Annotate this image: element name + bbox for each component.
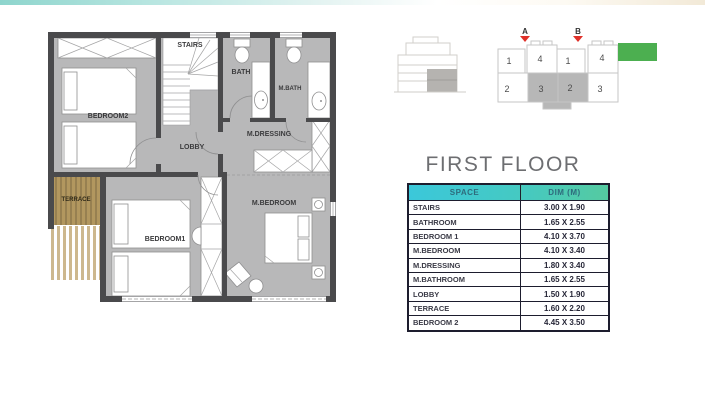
wardrobe-icon bbox=[254, 150, 312, 172]
space-cell: BATHROOM bbox=[408, 215, 521, 229]
section-marker-b: B bbox=[573, 27, 583, 42]
dim-cell: 3.00 X 1.90 bbox=[521, 201, 610, 215]
building-key-plan: A B 1 4 1 4 2 3 2 3 bbox=[494, 24, 622, 112]
floor-plan: STAIRS BATH M.BATH BEDROOM2 M.DRESSING L… bbox=[38, 24, 350, 316]
column-header-dim: DIM (M) bbox=[521, 184, 610, 201]
unit-number: 1 bbox=[565, 56, 570, 66]
svg-text:A: A bbox=[522, 27, 528, 36]
table-header-row: SPACE DIM (M) bbox=[408, 184, 609, 201]
bed-icon bbox=[112, 252, 190, 296]
table-row: BATHROOM1.65 X 2.55 bbox=[408, 215, 609, 229]
dim-cell: 4.45 X 3.50 bbox=[521, 316, 610, 331]
vanity-sink-icon bbox=[252, 62, 270, 118]
unit-number: 1 bbox=[506, 56, 511, 66]
room-label-bath: BATH bbox=[232, 69, 251, 76]
space-cell: LOBBY bbox=[408, 287, 521, 301]
unit-number: 4 bbox=[537, 54, 542, 64]
bed-icon bbox=[62, 68, 136, 114]
top-accent-bar bbox=[0, 0, 705, 5]
unit-number: 2 bbox=[567, 83, 572, 93]
room-label-mdressing: M.DRESSING bbox=[247, 131, 292, 138]
marker-arrow-icon bbox=[573, 36, 583, 42]
table-row: M.BEDROOM4.10 X 3.40 bbox=[408, 244, 609, 258]
key-plan-units: 1 4 1 4 2 3 2 3 bbox=[498, 41, 618, 109]
unit-number: 3 bbox=[597, 84, 602, 94]
wardrobe-icon bbox=[58, 38, 156, 58]
toilet-icon bbox=[286, 39, 302, 63]
space-cell: TERRACE bbox=[408, 301, 521, 315]
dim-cell: 1.65 X 2.55 bbox=[521, 215, 610, 229]
wardrobe-icon bbox=[312, 120, 330, 172]
room-label-lobby: LOBBY bbox=[180, 144, 205, 151]
side-table-icon bbox=[249, 279, 263, 293]
unit-number: 4 bbox=[599, 53, 604, 63]
svg-text:B: B bbox=[575, 27, 581, 36]
dim-cell: 1.60 X 2.20 bbox=[521, 301, 610, 315]
section-marker-a: A bbox=[520, 27, 530, 42]
room-label-bedroom2: BEDROOM2 bbox=[88, 113, 129, 120]
dim-cell: 1.50 X 1.90 bbox=[521, 287, 610, 301]
space-cell: M.DRESSING bbox=[408, 258, 521, 272]
legend-green-swatch bbox=[618, 43, 657, 61]
dimensions-table: SPACE DIM (M) STAIRS3.00 X 1.90 BATHROOM… bbox=[407, 183, 610, 332]
room-label-terrace: TERRACE bbox=[61, 197, 90, 203]
dim-cell: 1.80 X 3.40 bbox=[521, 258, 610, 272]
page-title: FIRST FLOOR bbox=[396, 153, 610, 177]
bed-icon bbox=[62, 122, 136, 168]
dim-cell: 1.65 X 2.55 bbox=[521, 272, 610, 286]
space-cell: M.BEDROOM bbox=[408, 244, 521, 258]
column-header-space: SPACE bbox=[408, 184, 521, 201]
table-row: LOBBY1.50 X 1.90 bbox=[408, 287, 609, 301]
terrace-open-deck bbox=[51, 226, 102, 280]
marker-arrow-icon bbox=[520, 36, 530, 42]
room-label-stairs: STAIRS bbox=[177, 42, 202, 49]
unit-number: 2 bbox=[504, 84, 509, 94]
space-cell: M.BATHROOM bbox=[408, 272, 521, 286]
room-label-mbath: M.BATH bbox=[279, 86, 302, 92]
table-row: BEDROOM 24.45 X 3.50 bbox=[408, 316, 609, 331]
unit-number: 3 bbox=[538, 84, 543, 94]
toilet-icon bbox=[234, 39, 250, 63]
space-cell: BEDROOM 2 bbox=[408, 316, 521, 331]
table-row: BEDROOM 14.10 X 3.70 bbox=[408, 229, 609, 243]
dim-cell: 4.10 X 3.40 bbox=[521, 244, 610, 258]
building-elevation-diagram bbox=[394, 34, 472, 96]
table-row: M.BATHROOM1.65 X 2.55 bbox=[408, 272, 609, 286]
space-cell: STAIRS bbox=[408, 201, 521, 215]
table-row: TERRACE1.60 X 2.20 bbox=[408, 301, 609, 315]
dim-cell: 4.10 X 3.70 bbox=[521, 229, 610, 243]
space-cell: BEDROOM 1 bbox=[408, 229, 521, 243]
room-label-mbedroom: M.BEDROOM bbox=[252, 200, 297, 207]
table-row: STAIRS3.00 X 1.90 bbox=[408, 201, 609, 215]
vanity-sink-icon bbox=[308, 62, 330, 118]
brochure-page: STAIRS BATH M.BATH BEDROOM2 M.DRESSING L… bbox=[0, 0, 705, 400]
room-label-bedroom1: BEDROOM1 bbox=[145, 236, 186, 243]
table-row: M.DRESSING1.80 X 3.40 bbox=[408, 258, 609, 272]
